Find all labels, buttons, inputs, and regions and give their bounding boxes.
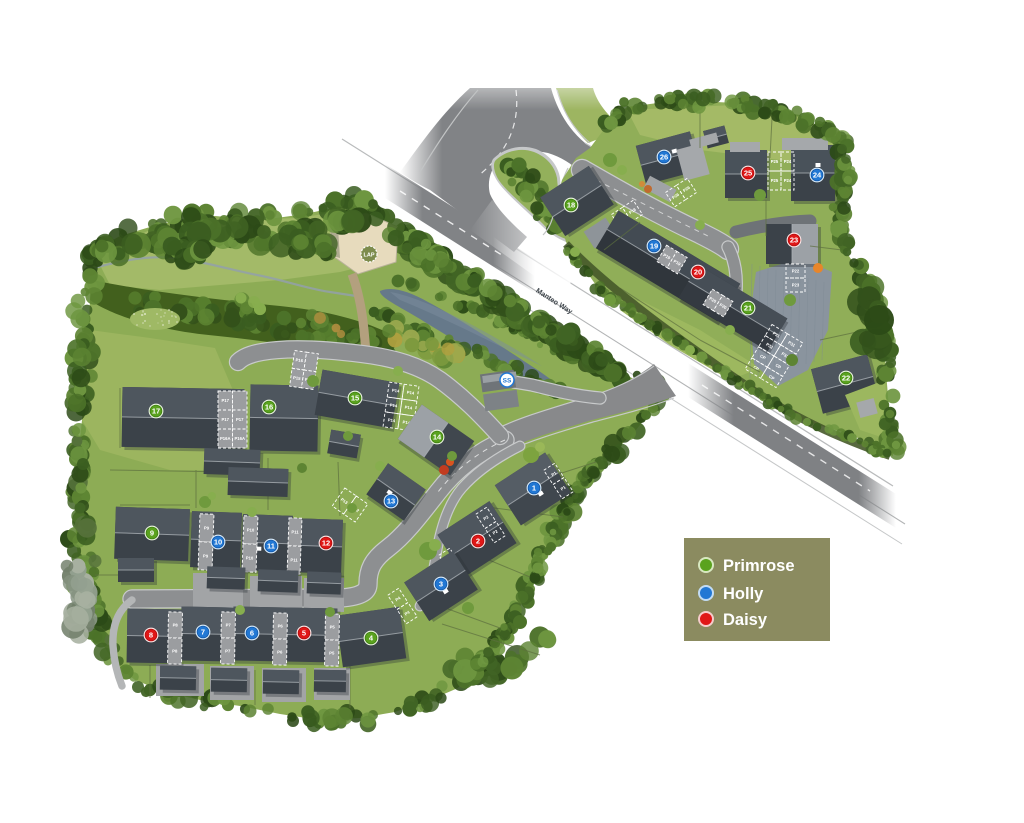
svg-text:SS: SS: [503, 378, 512, 385]
svg-text:P25: P25: [771, 159, 779, 164]
svg-text:12: 12: [322, 539, 330, 548]
svg-text:26: 26: [660, 153, 668, 162]
svg-text:P16A: P16A: [235, 436, 245, 441]
svg-text:6: 6: [250, 629, 254, 638]
svg-text:P6: P6: [277, 649, 283, 654]
svg-text:P9: P9: [203, 553, 209, 558]
svg-text:P24: P24: [784, 159, 792, 164]
svg-text:22: 22: [842, 374, 850, 383]
svg-text:18: 18: [567, 201, 575, 210]
svg-text:P11: P11: [290, 557, 298, 562]
svg-text:25: 25: [744, 169, 752, 178]
svg-text:P5: P5: [330, 624, 336, 629]
svg-text:5: 5: [302, 629, 306, 638]
svg-text:21: 21: [744, 304, 752, 313]
svg-text:14: 14: [433, 433, 442, 442]
svg-text:Daisy: Daisy: [723, 611, 768, 629]
svg-text:20: 20: [694, 268, 702, 277]
svg-text:16: 16: [265, 403, 273, 412]
svg-text:P25: P25: [771, 178, 779, 183]
svg-text:11: 11: [267, 542, 275, 551]
svg-text:9: 9: [150, 529, 154, 538]
svg-text:15: 15: [351, 394, 359, 403]
svg-text:P17: P17: [236, 417, 244, 422]
svg-text:P9: P9: [204, 525, 210, 530]
svg-text:Primrose: Primrose: [723, 557, 795, 575]
svg-text:P8: P8: [173, 622, 179, 627]
svg-text:P6: P6: [278, 623, 284, 628]
svg-text:P5: P5: [329, 650, 335, 655]
svg-text:P17: P17: [222, 398, 230, 403]
svg-text:8: 8: [149, 631, 153, 640]
svg-text:P24: P24: [784, 178, 792, 183]
svg-text:3: 3: [439, 580, 443, 589]
svg-text:24: 24: [813, 171, 822, 180]
svg-text:Holly: Holly: [723, 585, 764, 603]
svg-text:17: 17: [152, 407, 160, 416]
svg-text:P11: P11: [291, 529, 299, 534]
svg-text:P17: P17: [222, 417, 230, 422]
svg-text:P7: P7: [225, 648, 231, 653]
svg-text:23: 23: [790, 236, 798, 245]
svg-text:LAP: LAP: [364, 253, 375, 259]
svg-text:P10: P10: [246, 555, 254, 560]
svg-text:2: 2: [476, 537, 480, 546]
svg-text:P10: P10: [247, 527, 255, 532]
svg-text:P16A: P16A: [220, 436, 230, 441]
svg-text:10: 10: [214, 538, 222, 547]
svg-text:1: 1: [532, 484, 536, 493]
svg-text:P22: P22: [792, 269, 800, 274]
svg-text:19: 19: [650, 242, 658, 251]
svg-text:13: 13: [387, 497, 395, 506]
svg-text:7: 7: [201, 628, 205, 637]
svg-text:P8: P8: [172, 648, 178, 653]
svg-text:P7: P7: [226, 622, 232, 627]
svg-text:P23: P23: [792, 283, 800, 288]
